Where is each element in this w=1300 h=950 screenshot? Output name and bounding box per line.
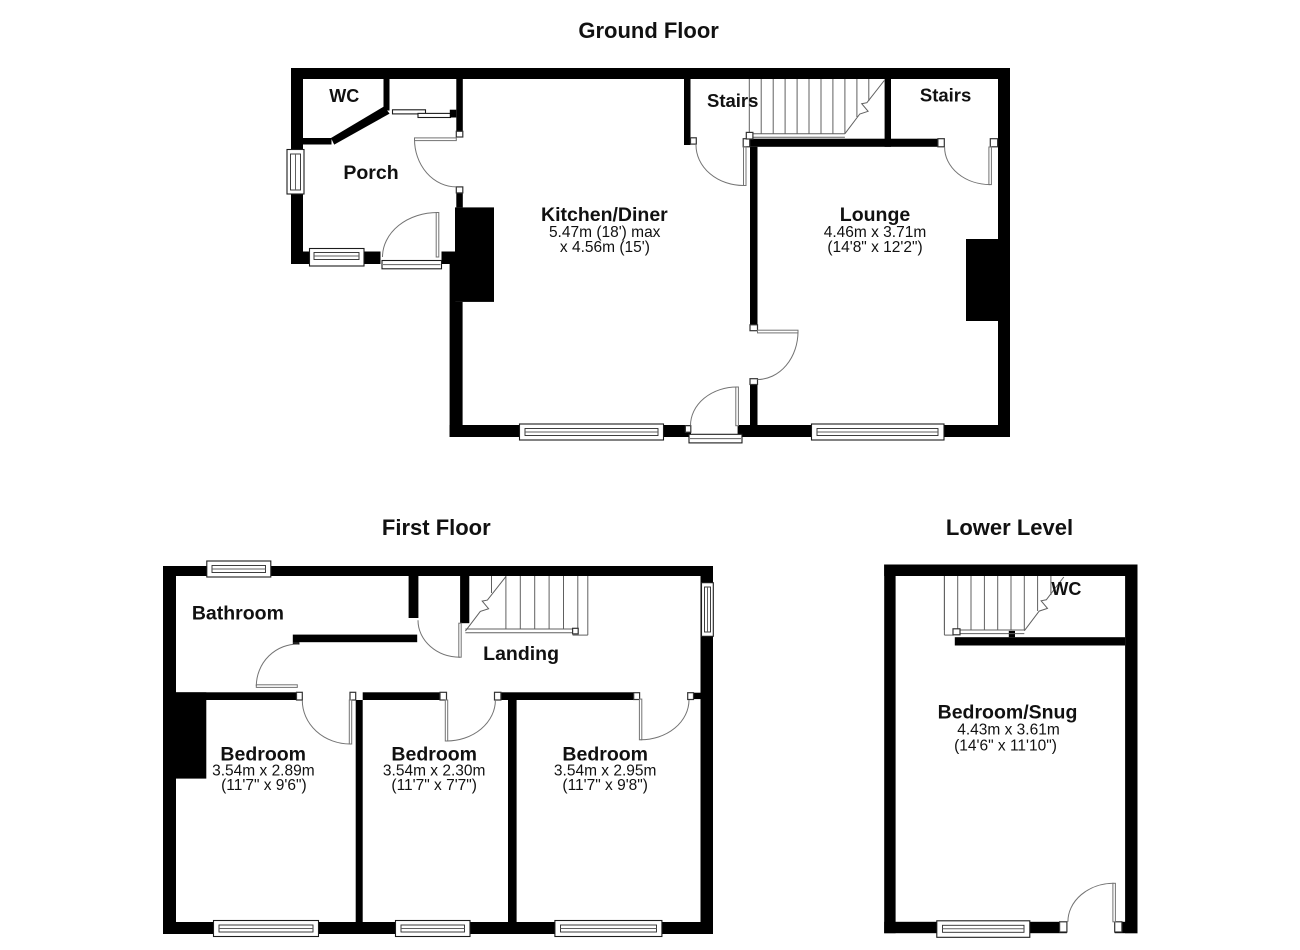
svg-text:x 4.56m (15'): x 4.56m (15') [560, 239, 650, 256]
svg-text:Porch: Porch [343, 162, 398, 184]
svg-text:First Floor: First Floor [382, 515, 491, 540]
svg-text:Lounge: Lounge [840, 204, 911, 226]
svg-text:WC: WC [1051, 579, 1081, 599]
svg-text:(11'7" x 7'7"): (11'7" x 7'7") [391, 777, 477, 794]
svg-text:(11'7" x 9'6"): (11'7" x 9'6") [221, 777, 307, 794]
svg-text:(14'8" x 12'2"): (14'8" x 12'2") [827, 239, 922, 256]
svg-text:Bedroom/Snug: Bedroom/Snug [938, 702, 1078, 724]
svg-text:Lower Level: Lower Level [946, 515, 1073, 540]
svg-text:Bathroom: Bathroom [192, 603, 284, 625]
svg-text:Ground Floor: Ground Floor [578, 18, 719, 43]
svg-text:Stairs: Stairs [920, 85, 971, 106]
svg-text:Kitchen/Diner: Kitchen/Diner [541, 204, 668, 226]
svg-text:Landing: Landing [483, 643, 559, 665]
svg-text:WC: WC [329, 86, 359, 106]
svg-text:(11'7" x 9'8"): (11'7" x 9'8") [562, 777, 648, 794]
svg-text:Stairs: Stairs [707, 90, 758, 111]
svg-text:4.43m x 3.61m: 4.43m x 3.61m [957, 722, 1060, 739]
svg-text:(14'6" x 11'10"): (14'6" x 11'10") [954, 738, 1057, 755]
